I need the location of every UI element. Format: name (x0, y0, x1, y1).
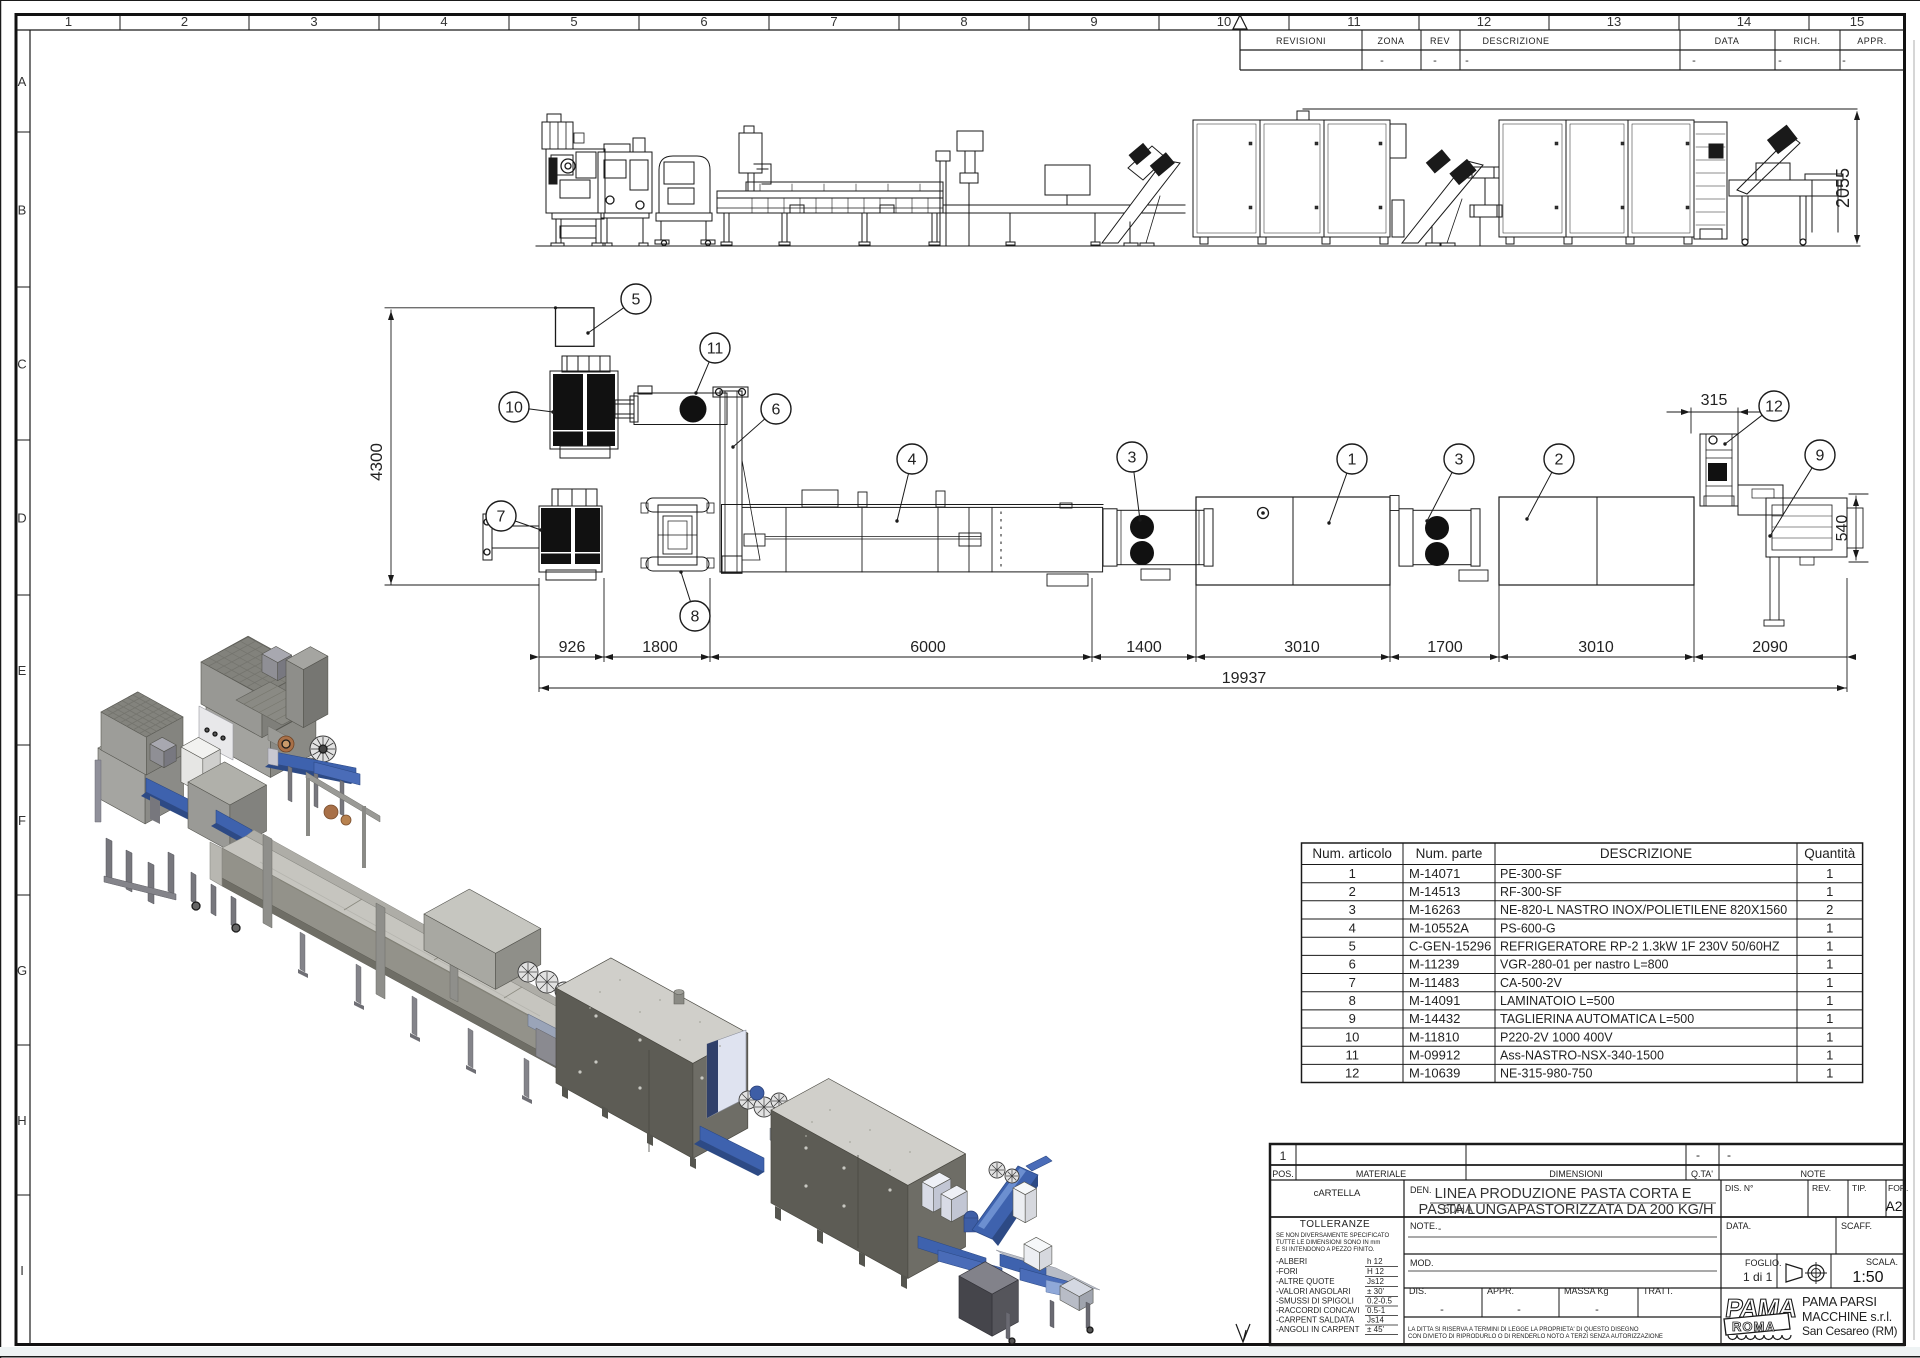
svg-text:M-09912: M-09912 (1409, 1048, 1460, 1063)
svg-text:M-10552A: M-10552A (1409, 920, 1469, 935)
svg-text:7: 7 (830, 14, 837, 29)
svg-text:Js12: Js12 (1367, 1277, 1384, 1286)
svg-text:E: E (18, 663, 27, 678)
svg-text:-: - (1778, 55, 1782, 67)
svg-text:DIMENSIONI: DIMENSIONI (1549, 1169, 1603, 1179)
svg-text:SCAFF.: SCAFF. (1841, 1221, 1872, 1231)
svg-text:SCALA.: SCALA. (1866, 1257, 1898, 1267)
svg-text:2090: 2090 (1752, 639, 1788, 656)
svg-text:cARTELLA: cARTELLA (1314, 1188, 1361, 1199)
svg-text:11: 11 (1347, 14, 1361, 29)
svg-text:1: 1 (1826, 866, 1833, 881)
svg-text:540: 540 (1834, 515, 1851, 542)
svg-text:1: 1 (65, 14, 72, 29)
svg-text:MASSA Kg: MASSA Kg (1564, 1286, 1609, 1296)
svg-text:ZONA: ZONA (1377, 36, 1404, 46)
svg-text:3010: 3010 (1578, 639, 1614, 656)
svg-text:RICH.: RICH. (1794, 36, 1821, 46)
svg-text:4: 4 (1349, 920, 1356, 935)
svg-text:C-GEN-15296: C-GEN-15296 (1409, 939, 1491, 954)
svg-text:-ANGOLI IN CARPENT: -ANGOLI IN CARPENT (1276, 1325, 1360, 1334)
svg-text:± 30': ± 30' (1367, 1287, 1385, 1296)
svg-text:DIS. N°: DIS. N° (1725, 1183, 1753, 1193)
svg-text:PAMA PARSI: PAMA PARSI (1802, 1294, 1877, 1309)
svg-text:REV.: REV. (1812, 1183, 1831, 1193)
svg-text:NE-315-980-750: NE-315-980-750 (1500, 1067, 1592, 1081)
svg-text:15: 15 (1850, 14, 1864, 29)
svg-text:1:50: 1:50 (1852, 1269, 1883, 1286)
svg-text:M-14091: M-14091 (1409, 993, 1460, 1008)
svg-text:1: 1 (1826, 1029, 1833, 1044)
svg-text:TIP.: TIP. (1852, 1183, 1867, 1193)
svg-text:A: A (18, 74, 27, 89)
svg-text:0.5-1: 0.5-1 (1367, 1306, 1386, 1315)
svg-text:10: 10 (1217, 14, 1231, 29)
svg-text:9: 9 (1349, 1011, 1356, 1026)
svg-text:1: 1 (1280, 1149, 1287, 1163)
svg-text:-SMUSSI DI SPIGOLI: -SMUSSI DI SPIGOLI (1276, 1297, 1354, 1306)
svg-text:8: 8 (1349, 993, 1356, 1008)
svg-text:CA-500-2V: CA-500-2V (1500, 976, 1562, 990)
svg-text:TAGLIERINA AUTOMATICA L=500: TAGLIERINA AUTOMATICA L=500 (1500, 1012, 1694, 1026)
svg-text:DESCRIZIONE: DESCRIZIONE (1482, 36, 1549, 46)
svg-text:CON DIVIETO DI RIPRODURLO O DI: CON DIVIETO DI RIPRODURLO O DI RENDERLO … (1408, 1334, 1663, 1340)
svg-text:B: B (18, 203, 27, 218)
svg-text:C: C (17, 357, 26, 372)
svg-text:P220-2V 1000 400V: P220-2V 1000 400V (1500, 1030, 1613, 1044)
svg-text:M-16263: M-16263 (1409, 902, 1460, 917)
svg-text:7: 7 (497, 509, 506, 526)
svg-text:REFRIGERATORE RP-2 1.3kW 1F: REFRIGERATORE RP-2 1.3kW 1F 230V 50/60HZ (1500, 940, 1780, 954)
svg-text:10: 10 (505, 400, 523, 417)
svg-text:3: 3 (310, 14, 317, 29)
svg-text:-: - (1465, 55, 1469, 67)
svg-text:0.2-0.5: 0.2-0.5 (1367, 1297, 1392, 1306)
svg-text:-ALTRE QUOTE: -ALTRE QUOTE (1276, 1277, 1335, 1286)
svg-text:-: - (1595, 1304, 1599, 1316)
svg-text:G: G (17, 963, 27, 978)
svg-text:4300: 4300 (367, 443, 386, 481)
svg-text:10: 10 (1345, 1029, 1359, 1044)
svg-text:-: - (1692, 55, 1696, 67)
svg-text:± 45': ± 45' (1367, 1325, 1385, 1334)
svg-text:1: 1 (1826, 884, 1833, 899)
svg-text:11: 11 (1345, 1048, 1359, 1063)
svg-text:Num. articolo: Num. articolo (1312, 846, 1392, 861)
svg-text:3: 3 (1455, 452, 1464, 469)
svg-text:1: 1 (1348, 452, 1357, 469)
svg-text:San Cesareo (RM): San Cesareo (RM) (1802, 1324, 1898, 1338)
svg-text:1800: 1800 (642, 639, 678, 656)
svg-text:8: 8 (691, 609, 700, 626)
svg-text:APPR.: APPR. (1857, 36, 1887, 46)
svg-text:ROMA: ROMA (1732, 1319, 1776, 1334)
svg-text:E SI INTENDONO A PEZZO FINITO.: E SI INTENDONO A PEZZO FINITO. (1276, 1247, 1375, 1253)
svg-text:2: 2 (1826, 902, 1833, 917)
svg-text:h 12: h 12 (1367, 1257, 1383, 1266)
svg-text:1: 1 (1826, 957, 1833, 972)
svg-text:M-11239: M-11239 (1409, 957, 1459, 972)
svg-text:12: 12 (1765, 399, 1783, 416)
svg-text:NE-820-L NASTRO INOX/POLIETILE: NE-820-L NASTRO INOX/POLIETILENE 820X156… (1500, 903, 1787, 917)
svg-text:M-14513: M-14513 (1409, 884, 1460, 899)
svg-text:MOD.: MOD. (1410, 1258, 1434, 1268)
svg-text:TUTTE LE DIMENSIONI SONO IN mm: TUTTE LE DIMENSIONI SONO IN mm (1276, 1240, 1380, 1246)
svg-text:M-11483: M-11483 (1409, 975, 1459, 990)
svg-text:SE NON DIVERSAMENTE SPECIFICAT: SE NON DIVERSAMENTE SPECIFICATO (1276, 1233, 1389, 1239)
svg-text:I: I (20, 1263, 24, 1278)
svg-text:2055: 2055 (1833, 168, 1853, 208)
svg-text:F: F (18, 813, 26, 828)
svg-text:1: 1 (1826, 975, 1833, 990)
svg-text:1: 1 (1349, 866, 1356, 881)
svg-text:12: 12 (1345, 1066, 1359, 1081)
svg-text:PE-300-SF: PE-300-SF (1500, 867, 1562, 881)
svg-text:3010: 3010 (1284, 639, 1320, 656)
svg-text:4: 4 (440, 14, 447, 29)
svg-text:REVISIONI: REVISIONI (1276, 36, 1326, 46)
svg-text:M-11810: M-11810 (1409, 1029, 1459, 1044)
svg-text:-ALBERI: -ALBERI (1276, 1257, 1307, 1266)
svg-text:-CARPENT SALDATA: -CARPENT SALDATA (1276, 1316, 1355, 1325)
svg-text:PS-600-G: PS-600-G (1500, 921, 1556, 935)
svg-text:1: 1 (1826, 920, 1833, 935)
svg-text:Num. parte: Num. parte (1416, 846, 1483, 861)
svg-text:2: 2 (1349, 884, 1356, 899)
svg-text:D: D (17, 511, 26, 526)
svg-text:1700: 1700 (1427, 639, 1463, 656)
svg-text:5: 5 (570, 14, 577, 29)
svg-text:-: - (1727, 1148, 1731, 1162)
svg-text:MACCHINE s.r.l.: MACCHINE s.r.l. (1802, 1310, 1892, 1324)
svg-text:19937: 19937 (1222, 670, 1267, 687)
svg-text:POS.: POS. (1272, 1169, 1294, 1179)
svg-text:6: 6 (700, 14, 707, 29)
svg-text:-VALORI ANGOLARI: -VALORI ANGOLARI (1276, 1287, 1351, 1296)
svg-text:DIS.: DIS. (1409, 1286, 1427, 1296)
svg-text:9: 9 (1090, 14, 1097, 29)
svg-text:NOTE: NOTE (1800, 1169, 1825, 1179)
svg-text:RF-300-SF: RF-300-SF (1500, 885, 1562, 899)
svg-text:1: 1 (1826, 993, 1833, 1008)
svg-text:14: 14 (1737, 14, 1751, 29)
svg-text:VGR-280-01 per nastro L=800: VGR-280-01 per nastro L=800 (1500, 958, 1669, 972)
svg-text:H: H (17, 1113, 26, 1128)
svg-text:13: 13 (1607, 14, 1621, 29)
svg-text:LA DITTA SI RISERVA A TERMINI: LA DITTA SI RISERVA A TERMINI DI LEGGE L… (1408, 1327, 1639, 1333)
svg-text:REV: REV (1430, 36, 1450, 46)
svg-text:LINEA PRODUZIONE PASTA CORTA E: LINEA PRODUZIONE PASTA CORTA E (1435, 1186, 1692, 1202)
svg-text:1: 1 (1826, 1066, 1833, 1081)
svg-text:1: 1 (1826, 1011, 1833, 1026)
svg-text:DATA.: DATA. (1726, 1221, 1751, 1231)
svg-text:8: 8 (960, 14, 967, 29)
svg-text:6000: 6000 (910, 639, 946, 656)
svg-text:DATA: DATA (1715, 36, 1740, 46)
svg-text:M-10639: M-10639 (1409, 1066, 1460, 1081)
svg-text:FOGLIO.: FOGLIO. (1745, 1258, 1782, 1268)
svg-text:3: 3 (1349, 902, 1356, 917)
svg-text:3: 3 (1128, 450, 1137, 467)
svg-text:PASTA LUNGAPASTORIZZATA DA 200: PASTA LUNGAPASTORIZZATA DA 200 KG/H (1419, 1202, 1714, 1218)
svg-text:Js14: Js14 (1367, 1316, 1384, 1325)
svg-text:Q.TA': Q.TA' (1691, 1169, 1713, 1179)
svg-text:-RACCORDI CONCAVI: -RACCORDI CONCAVI (1276, 1306, 1359, 1315)
svg-text:TOLLERANZE: TOLLERANZE (1300, 1219, 1370, 1230)
svg-text:2: 2 (1555, 452, 1564, 469)
svg-text:M-14432: M-14432 (1409, 1011, 1460, 1026)
svg-text:-: - (1842, 55, 1846, 67)
svg-text:2: 2 (181, 14, 188, 29)
svg-text:APPR.: APPR. (1487, 1286, 1514, 1296)
svg-text:11: 11 (707, 341, 724, 358)
svg-text:-: - (1517, 1304, 1521, 1316)
svg-text:5: 5 (1349, 939, 1356, 954)
svg-text:H 12: H 12 (1367, 1267, 1384, 1276)
svg-text:Ass-NASTRO-NSX-340-1500: Ass-NASTRO-NSX-340-1500 (1500, 1049, 1664, 1063)
svg-text:-: - (1696, 1148, 1700, 1162)
svg-text:1: 1 (1826, 939, 1833, 954)
svg-text:315: 315 (1701, 392, 1728, 409)
svg-text:MATERIALE: MATERIALE (1356, 1169, 1406, 1179)
svg-text:-: - (1380, 55, 1384, 67)
svg-text:-: - (1433, 55, 1437, 67)
svg-text:4: 4 (908, 452, 917, 469)
svg-text:Quantità: Quantità (1804, 846, 1856, 861)
svg-text:A2: A2 (1885, 1198, 1902, 1214)
svg-text:DEN.: DEN. (1410, 1185, 1432, 1195)
svg-text:7: 7 (1349, 975, 1356, 990)
svg-text:FOR.: FOR. (1888, 1183, 1908, 1193)
svg-text:-FORI: -FORI (1276, 1267, 1298, 1276)
svg-text:1400: 1400 (1126, 639, 1162, 656)
svg-text:1 di 1: 1 di 1 (1743, 1270, 1773, 1284)
svg-text:5: 5 (632, 292, 641, 309)
svg-text:1: 1 (1826, 1048, 1833, 1063)
svg-text:-: - (1440, 1304, 1444, 1316)
svg-text:DESCRIZIONE: DESCRIZIONE (1600, 846, 1692, 861)
svg-text:926: 926 (559, 639, 586, 656)
svg-text:NOTE.: NOTE. (1410, 1221, 1438, 1231)
svg-text:12: 12 (1477, 14, 1491, 29)
svg-text:TRATT.: TRATT. (1643, 1286, 1673, 1296)
svg-text:9: 9 (1816, 448, 1825, 465)
svg-text:-: - (1438, 1224, 1441, 1235)
svg-text:6: 6 (1349, 957, 1356, 972)
svg-text:6: 6 (772, 402, 781, 419)
svg-text:LAMINATOIO L=500: LAMINATOIO L=500 (1500, 994, 1615, 1008)
svg-text:M-14071: M-14071 (1409, 866, 1460, 881)
